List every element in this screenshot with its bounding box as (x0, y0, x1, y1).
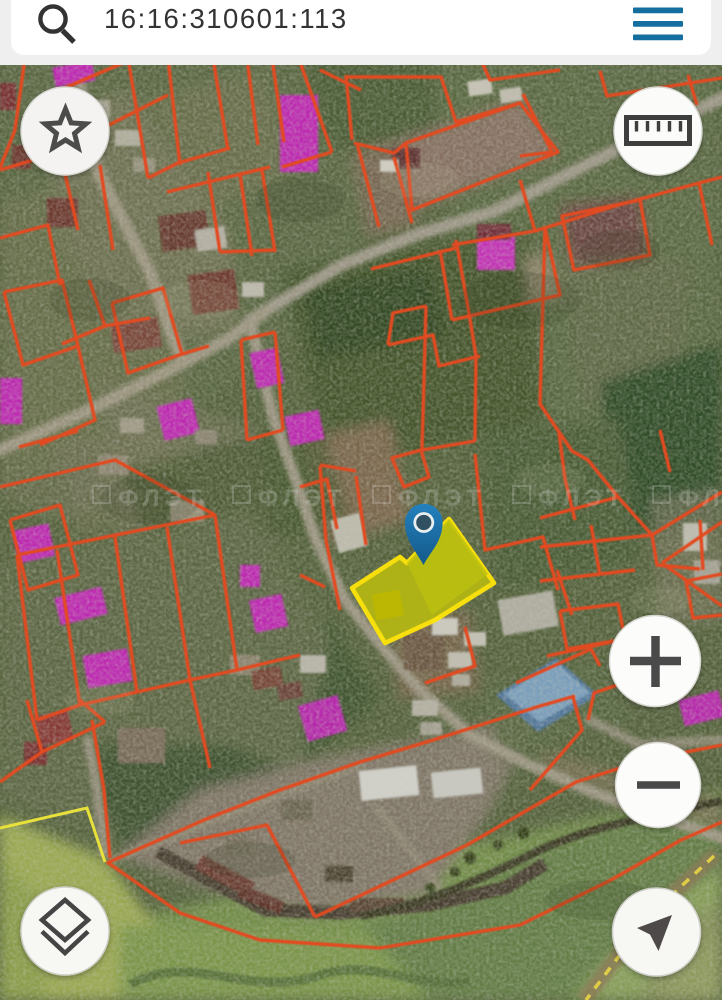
svg-text:ФЛЭТ: ФЛЭТ (258, 485, 346, 512)
svg-text:ФЛЭТ: ФЛЭТ (538, 485, 626, 512)
svg-text:ФЛЭТ: ФЛЭТ (678, 485, 722, 512)
svg-text:16:16:310601:113: 16:16:310601:113 (104, 3, 348, 34)
svg-text:ФЛЭТ: ФЛЭТ (398, 485, 486, 512)
svg-text:ФЛЭТ: ФЛЭТ (118, 485, 206, 512)
